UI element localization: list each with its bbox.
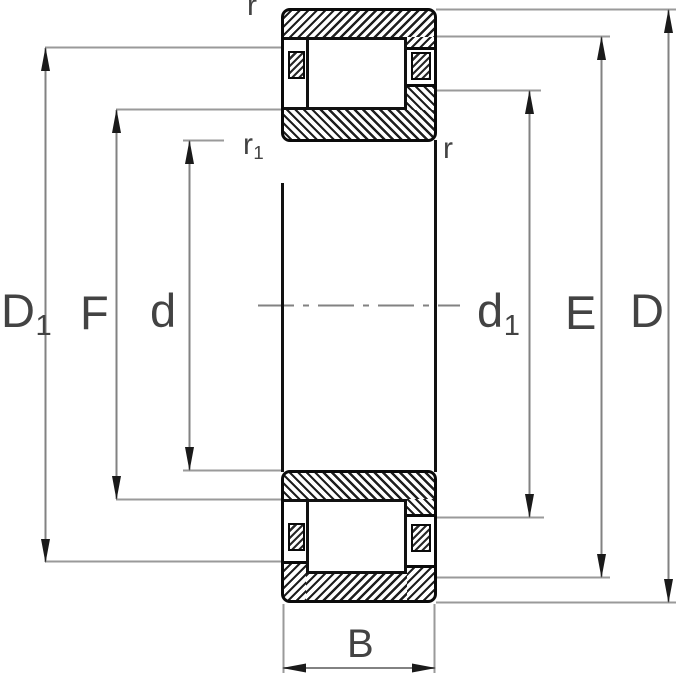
dim-label-D: D: [630, 287, 664, 334]
arrow-E-down: [597, 554, 606, 578]
arrow-F-down: [112, 476, 121, 500]
radius-label-r-top: r: [247, 0, 257, 21]
arrow-d-down: [185, 447, 194, 471]
bore-left-face-line: [281, 183, 284, 472]
dim-label-E-main: E: [565, 286, 596, 339]
dim-label-F-main: F: [80, 286, 109, 339]
dim-label-D1-main: D: [1, 284, 35, 337]
radius-label-r-top-main: r: [247, 0, 257, 22]
bore-right-face-line: [434, 140, 437, 472]
arrow-B-left: [282, 664, 306, 673]
arrow-d1-up: [525, 90, 534, 114]
dim-label-D1: D1: [1, 287, 51, 334]
radius-label-r-right: r: [443, 134, 453, 164]
arrow-d-up: [185, 140, 194, 164]
dim-label-d1: d1: [477, 287, 519, 334]
dim-label-E: E: [565, 289, 596, 336]
arrow-D-down: [664, 579, 673, 603]
radius-label-r1: r1: [243, 130, 263, 160]
dim-label-d: d: [150, 287, 176, 334]
dim-label-D1-sub: 1: [36, 310, 52, 342]
arrow-D1-down: [41, 539, 50, 563]
arrow-E-up: [597, 36, 606, 60]
radius-label-r-right-main: r: [443, 132, 453, 165]
bottom-section-outline: [281, 470, 437, 603]
radius-label-r1-sub: 1: [253, 142, 263, 163]
dim-label-D-main: D: [630, 284, 664, 337]
bearing-dimension-diagram: D1 F d d1 E D B r r1 r: [0, 0, 680, 680]
arrow-d1-down: [525, 494, 534, 518]
arrow-B-right: [412, 664, 436, 673]
arrow-D1-up: [41, 47, 50, 71]
dim-label-B: B: [347, 624, 374, 664]
top-section-outline: [281, 8, 437, 142]
dim-label-d1-sub: 1: [504, 310, 520, 342]
arrow-F-up: [112, 109, 121, 133]
radius-label-r1-main: r: [243, 128, 253, 161]
dim-label-d1-main: d: [477, 284, 503, 337]
dim-label-d-main: d: [150, 284, 176, 337]
dim-label-B-main: B: [347, 622, 374, 666]
dim-label-F: F: [80, 289, 109, 336]
arrow-D-up: [664, 9, 673, 33]
